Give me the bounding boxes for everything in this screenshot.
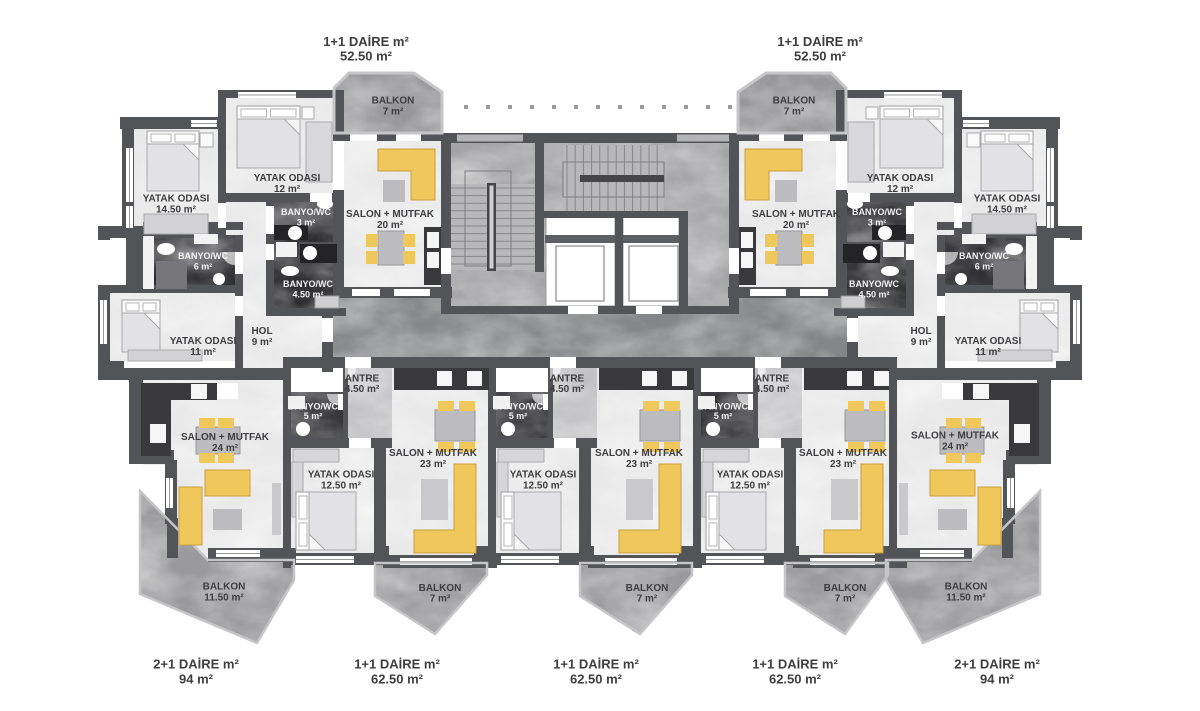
svg-text:7 m²: 7 m² [383,107,404,118]
svg-text:9 m²: 9 m² [252,337,273,348]
svg-text:HOL: HOL [910,326,931,337]
svg-text:4.50 m²: 4.50 m² [858,290,889,300]
svg-text:11.50 m²: 11.50 m² [946,593,986,604]
svg-text:BANYO/WC: BANYO/WC [493,402,543,412]
svg-text:4.50 m²: 4.50 m² [755,384,790,395]
svg-text:ANTRE: ANTRE [755,374,790,385]
svg-text:20 m²: 20 m² [783,220,810,231]
svg-text:YATAK ODASI: YATAK ODASI [143,194,210,205]
svg-text:YATAK ODASI: YATAK ODASI [867,173,934,184]
svg-text:7 m²: 7 m² [430,594,451,605]
svg-text:11.50 m²: 11.50 m² [204,593,244,604]
svg-text:12 m²: 12 m² [887,184,914,195]
svg-text:SALON + MUTFAK: SALON + MUTFAK [752,209,841,220]
svg-text:1+1 DAİRE m²: 1+1 DAİRE m² [777,34,863,49]
svg-text:12.50 m²: 12.50 m² [730,481,771,492]
svg-text:62.50 m²: 62.50 m² [769,672,822,687]
svg-text:YATAK ODASI: YATAK ODASI [955,336,1022,347]
svg-text:YATAK ODASI: YATAK ODASI [254,173,321,184]
svg-text:52.50 m²: 52.50 m² [340,49,393,64]
svg-text:11 m²: 11 m² [190,347,216,358]
svg-text:YATAK ODASI: YATAK ODASI [974,194,1041,205]
svg-text:24 m²: 24 m² [212,443,239,454]
svg-text:ANTRE: ANTRE [345,374,380,385]
svg-text:3 m²: 3 m² [297,218,316,228]
svg-text:1+1 DAİRE m²: 1+1 DAİRE m² [752,657,838,672]
svg-text:3 m²: 3 m² [868,218,887,228]
svg-text:7 m²: 7 m² [784,107,805,118]
svg-text:SALON + MUTFAK: SALON + MUTFAK [181,432,270,443]
svg-text:11 m²: 11 m² [975,347,1001,358]
svg-text:6 m²: 6 m² [194,262,213,272]
svg-text:1+1 DAİRE m²: 1+1 DAİRE m² [553,657,639,672]
svg-text:1+1 DAİRE m²: 1+1 DAİRE m² [354,657,440,672]
svg-text:23 m²: 23 m² [830,459,857,470]
svg-text:BALKON: BALKON [626,583,669,594]
svg-text:BALKON: BALKON [824,583,867,594]
svg-text:YATAK ODASI: YATAK ODASI [170,336,237,347]
svg-text:YATAK ODASI: YATAK ODASI [510,470,577,481]
svg-text:62.50 m²: 62.50 m² [570,672,623,687]
svg-text:HOL: HOL [251,326,272,337]
svg-text:7 m²: 7 m² [637,594,658,605]
svg-text:5 m²: 5 m² [509,411,528,421]
svg-text:BANYO/WC: BANYO/WC [959,251,1009,261]
svg-text:BALKON: BALKON [372,96,415,107]
svg-text:23 m²: 23 m² [420,459,447,470]
svg-text:2+1 DAİRE m²: 2+1 DAİRE m² [954,657,1040,672]
svg-text:BANYO/WC: BANYO/WC [281,207,331,217]
svg-text:YATAK ODASI: YATAK ODASI [308,470,375,481]
svg-text:ANTRE: ANTRE [550,374,585,385]
svg-text:BALKON: BALKON [203,582,246,593]
svg-text:2+1 DAİRE m²: 2+1 DAİRE m² [153,657,239,672]
svg-text:52.50 m²: 52.50 m² [794,49,847,64]
svg-text:1+1 DAİRE m²: 1+1 DAİRE m² [323,34,409,49]
svg-text:4.50 m²: 4.50 m² [345,384,380,395]
svg-text:9 m²: 9 m² [911,337,932,348]
svg-text:94 m²: 94 m² [980,672,1015,687]
svg-text:12.50 m²: 12.50 m² [523,481,564,492]
svg-text:BANYO/WC: BANYO/WC [288,402,338,412]
svg-text:6 m²: 6 m² [975,262,994,272]
svg-text:BALKON: BALKON [945,582,988,593]
svg-text:SALON + MUTFAK: SALON + MUTFAK [799,448,888,459]
svg-text:BANYO/WC: BANYO/WC [849,279,899,289]
svg-text:SALON + MUTFAK: SALON + MUTFAK [595,448,684,459]
svg-text:5 m²: 5 m² [304,411,323,421]
svg-text:5 m²: 5 m² [714,411,733,421]
svg-text:SALON + MUTFAK: SALON + MUTFAK [911,431,1000,442]
svg-text:62.50 m²: 62.50 m² [371,672,424,687]
svg-text:SALON + MUTFAK: SALON + MUTFAK [346,209,435,220]
svg-text:YATAK ODASI: YATAK ODASI [717,470,784,481]
svg-text:BANYO/WC: BANYO/WC [178,251,228,261]
svg-text:4.50 m²: 4.50 m² [550,384,585,395]
svg-text:4.50 m²: 4.50 m² [292,290,323,300]
svg-text:12.50 m²: 12.50 m² [321,481,362,492]
svg-text:14.50 m²: 14.50 m² [156,205,197,216]
svg-text:7 m²: 7 m² [835,594,856,605]
svg-text:23 m²: 23 m² [626,459,653,470]
svg-text:14.50 m²: 14.50 m² [987,205,1028,216]
svg-text:BANYO/WC: BANYO/WC [283,279,333,289]
svg-text:24 m²: 24 m² [942,442,969,453]
svg-text:BANYO/WC: BANYO/WC [852,207,902,217]
svg-text:12 m²: 12 m² [274,184,301,195]
svg-text:20 m²: 20 m² [377,220,404,231]
svg-text:SALON + MUTFAK: SALON + MUTFAK [389,448,478,459]
svg-text:BALKON: BALKON [773,96,816,107]
svg-text:BALKON: BALKON [419,583,462,594]
svg-text:94 m²: 94 m² [179,672,214,687]
svg-text:BANYO/WC: BANYO/WC [698,402,748,412]
